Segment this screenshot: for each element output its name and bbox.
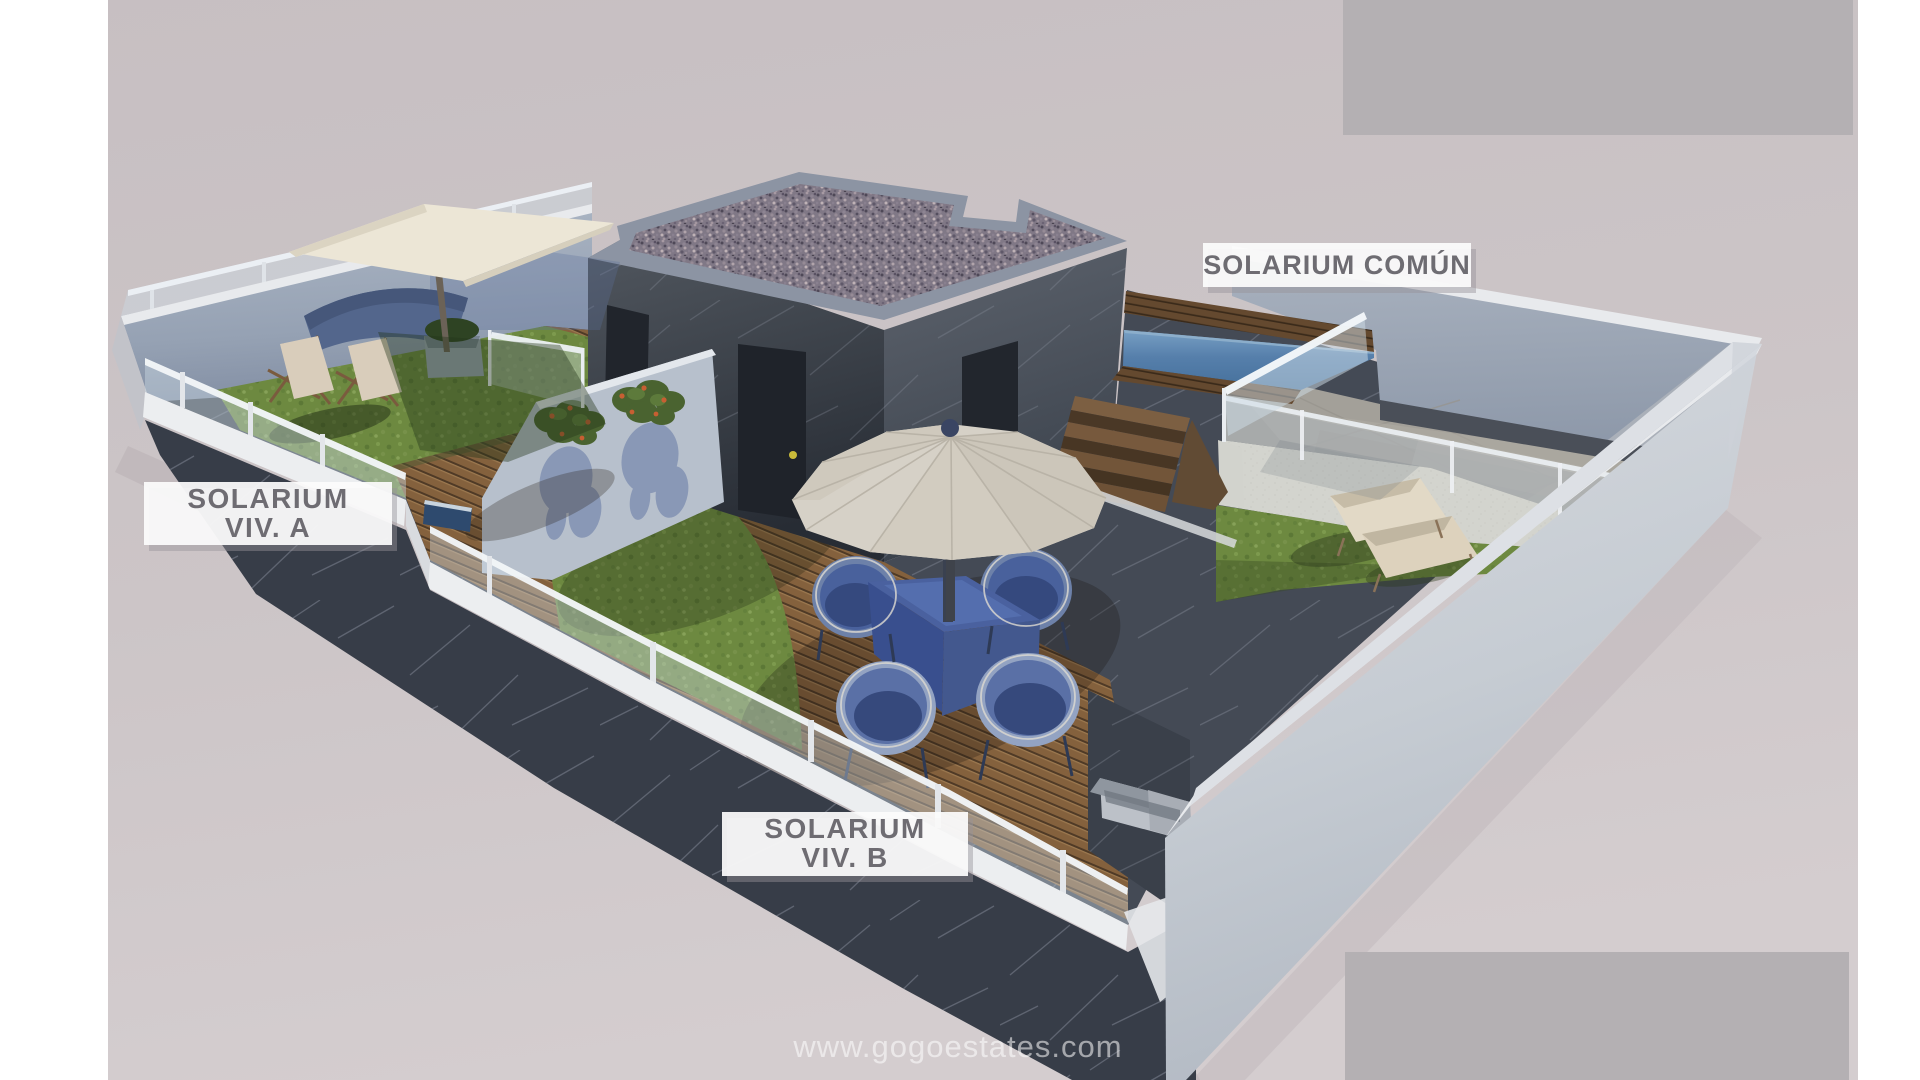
svg-text:SOLARIUM: SOLARIUM	[764, 813, 925, 844]
svg-text:VIV. B: VIV. B	[801, 842, 888, 873]
svg-text:VIV. A: VIV. A	[225, 512, 311, 543]
svg-text:SOLARIUM COMÚN: SOLARIUM COMÚN	[1203, 249, 1470, 280]
svg-text:www.gogoestates.com: www.gogoestates.com	[792, 1029, 1122, 1064]
svg-text:SOLARIUM: SOLARIUM	[187, 483, 348, 514]
